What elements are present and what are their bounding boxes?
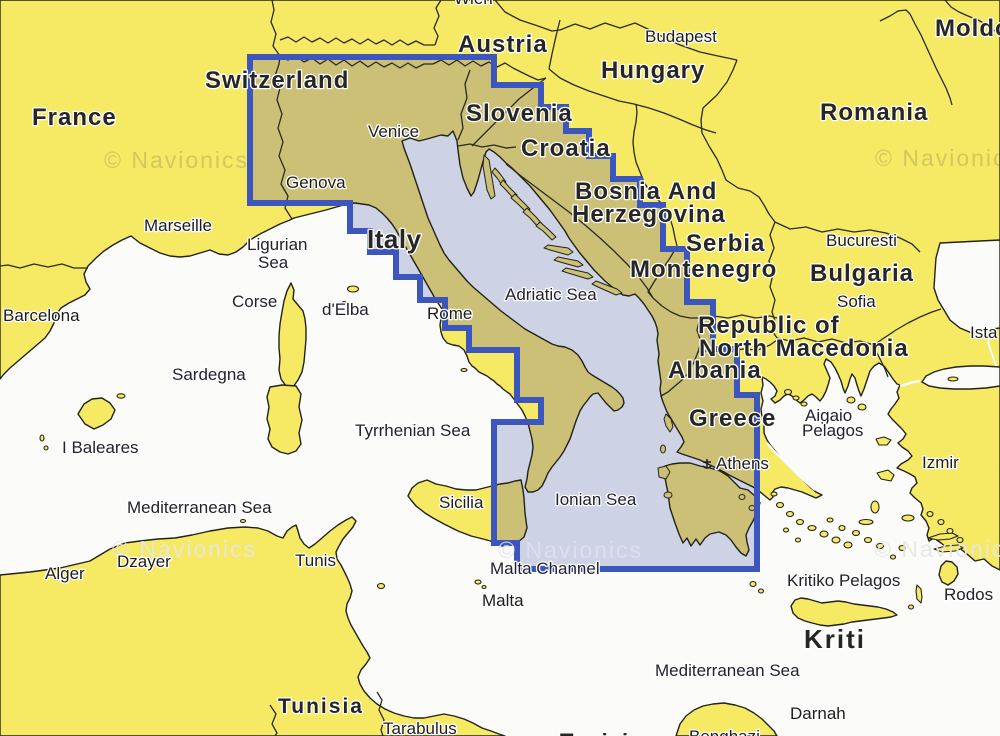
svg-text:Austria: Austria	[458, 31, 548, 58]
svg-text:Alger: Alger	[45, 564, 85, 583]
svg-text:Adriatic Sea: Adriatic Sea	[505, 285, 597, 304]
svg-text:Sardegna: Sardegna	[172, 365, 246, 384]
svg-text:Sofia: Sofia	[837, 292, 876, 311]
svg-text:Serbia: Serbia	[686, 230, 765, 257]
svg-text:Tunis: Tunis	[295, 551, 336, 570]
svg-text:Malta Channel: Malta Channel	[490, 559, 600, 578]
svg-text:Sicilia: Sicilia	[439, 493, 484, 512]
svg-text:Genova: Genova	[286, 173, 346, 192]
svg-text:Sea: Sea	[258, 253, 289, 272]
svg-text:Montenegro: Montenegro	[630, 256, 777, 283]
svg-text:Marseille: Marseille	[144, 216, 212, 235]
svg-text:Mediterranean Sea: Mediterranean Sea	[655, 661, 800, 680]
svg-text:Malta: Malta	[482, 591, 524, 610]
svg-text:Barcelona: Barcelona	[3, 306, 80, 325]
svg-text:Corse: Corse	[232, 292, 277, 311]
svg-text:Kriti: Kriti	[804, 624, 866, 654]
svg-text:Darnah: Darnah	[790, 704, 846, 723]
svg-text:Benghazi: Benghazi	[689, 727, 760, 736]
svg-text:I Baleares: I Baleares	[62, 438, 139, 457]
svg-text:Wien: Wien	[454, 0, 493, 8]
svg-text:© Navionics: © Navionics	[104, 147, 249, 173]
svg-text:Bulgaria: Bulgaria	[810, 260, 914, 287]
svg-text:Ionian Sea: Ionian Sea	[555, 490, 637, 509]
svg-text:Ista: Ista	[970, 323, 998, 342]
svg-text:Pelagos: Pelagos	[802, 421, 863, 440]
svg-text:Italy: Italy	[367, 224, 422, 254]
svg-text:Kritiko Pelagos: Kritiko Pelagos	[787, 571, 900, 590]
svg-text:Venice: Venice	[368, 122, 419, 141]
svg-text:Hungary: Hungary	[601, 57, 705, 84]
svg-text:Tunisia: Tunisia	[278, 695, 364, 718]
svg-text:Mediterranean Sea: Mediterranean Sea	[127, 498, 272, 517]
svg-text:Romania: Romania	[820, 99, 928, 126]
svg-text:Greece: Greece	[689, 405, 776, 432]
svg-text:Herzegovina: Herzegovina	[572, 201, 726, 228]
svg-text:Switzerland: Switzerland	[205, 67, 349, 94]
svg-text:France: France	[32, 104, 117, 131]
svg-text:Tarabulus: Tarabulus	[383, 719, 457, 736]
svg-text:Tunisia: Tunisia	[560, 729, 642, 736]
svg-text:Tyrrhenian Sea: Tyrrhenian Sea	[355, 421, 471, 440]
svg-text:Albania: Albania	[668, 357, 762, 384]
svg-text:Croatia: Croatia	[521, 135, 611, 162]
svg-text:Moldo: Moldo	[935, 15, 1000, 42]
svg-text:Slovenia: Slovenia	[466, 100, 573, 127]
svg-text:Izmir: Izmir	[922, 453, 959, 472]
svg-text:© Navionics: © Navionics	[875, 145, 1000, 171]
svg-text:Bucuresti: Bucuresti	[826, 231, 897, 250]
svg-text:Budapest: Budapest	[645, 27, 717, 46]
svg-text:Rodos: Rodos	[944, 585, 993, 604]
svg-text:Ligurian: Ligurian	[247, 235, 308, 254]
svg-text:d'Elba: d'Elba	[322, 300, 369, 319]
svg-text:Rome: Rome	[427, 304, 472, 323]
svg-text:Athens: Athens	[716, 454, 769, 473]
svg-text:© Navionics: © Navionics	[874, 536, 1000, 562]
svg-text:Dzayer: Dzayer	[117, 552, 171, 571]
